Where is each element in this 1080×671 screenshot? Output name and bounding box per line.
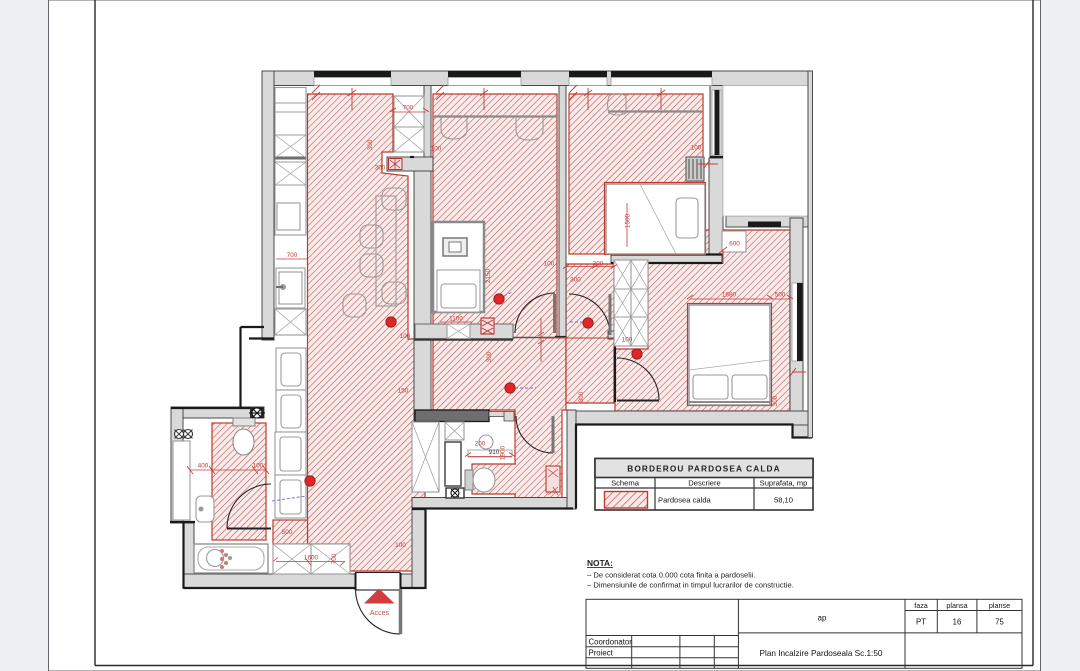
svg-text:Plan Incalzire Pardoseala Sc.1: Plan Incalzire Pardoseala Sc.1:50 <box>760 649 883 658</box>
svg-text:58,10: 58,10 <box>774 496 793 505</box>
svg-text:2150: 2150 <box>485 268 492 283</box>
svg-text:1100: 1100 <box>449 316 463 323</box>
svg-text:1900: 1900 <box>500 445 507 460</box>
svg-text:700: 700 <box>403 105 414 112</box>
svg-text:700: 700 <box>287 252 298 259</box>
svg-text:150: 150 <box>398 388 409 395</box>
svg-text:100: 100 <box>431 146 442 153</box>
svg-text:300: 300 <box>486 351 493 362</box>
svg-text:Schema: Schema <box>611 479 640 488</box>
svg-text:16: 16 <box>953 618 962 627</box>
svg-text:1500: 1500 <box>625 213 632 228</box>
svg-text:Descriere: Descriere <box>688 479 721 488</box>
svg-text:100: 100 <box>622 337 633 344</box>
svg-text:Coordonator: Coordonator <box>589 637 633 646</box>
svg-text:100: 100 <box>544 261 555 268</box>
svg-text:300: 300 <box>375 165 386 172</box>
svg-text:400: 400 <box>198 463 209 470</box>
svg-text:BORDEROU PARDOSEA CALDA: BORDEROU PARDOSEA CALDA <box>627 464 780 474</box>
svg-text:NOTA:: NOTA: <box>587 558 613 568</box>
svg-text:– De considerat cota 0.000 cot: – De considerat cota 0.000 cota finita a… <box>587 571 755 580</box>
svg-text:plansa: plansa <box>946 601 967 610</box>
svg-text:Suprafata, mp: Suprafata, mp <box>760 479 808 488</box>
svg-text:PT: PT <box>916 618 926 627</box>
svg-text:– Dimensiunile de confirmat in: – Dimensiunile de confirmat in timpul lu… <box>587 581 794 590</box>
svg-text:faza: faza <box>914 601 928 610</box>
svg-text:Pardosea calda: Pardosea calda <box>658 496 712 505</box>
svg-text:200: 200 <box>475 441 486 448</box>
svg-text:300: 300 <box>578 391 585 402</box>
svg-text:planse: planse <box>989 601 1010 610</box>
svg-text:300: 300 <box>772 395 779 406</box>
svg-text:ap: ap <box>818 614 827 623</box>
svg-text:1600: 1600 <box>304 555 319 562</box>
svg-text:100: 100 <box>400 333 411 340</box>
svg-text:Proiect: Proiect <box>589 649 614 658</box>
svg-text:300: 300 <box>367 139 374 150</box>
svg-text:100: 100 <box>395 542 406 549</box>
svg-text:300: 300 <box>570 277 581 284</box>
svg-text:910: 910 <box>489 449 500 456</box>
svg-text:500: 500 <box>282 529 293 536</box>
svg-text:700: 700 <box>331 553 338 564</box>
svg-text:600: 600 <box>729 241 740 248</box>
svg-text:Acces: Acces <box>370 608 390 617</box>
svg-text:1680: 1680 <box>722 292 737 299</box>
svg-text:75: 75 <box>995 618 1004 627</box>
svg-text:500: 500 <box>775 292 786 299</box>
svg-text:100: 100 <box>691 145 702 152</box>
